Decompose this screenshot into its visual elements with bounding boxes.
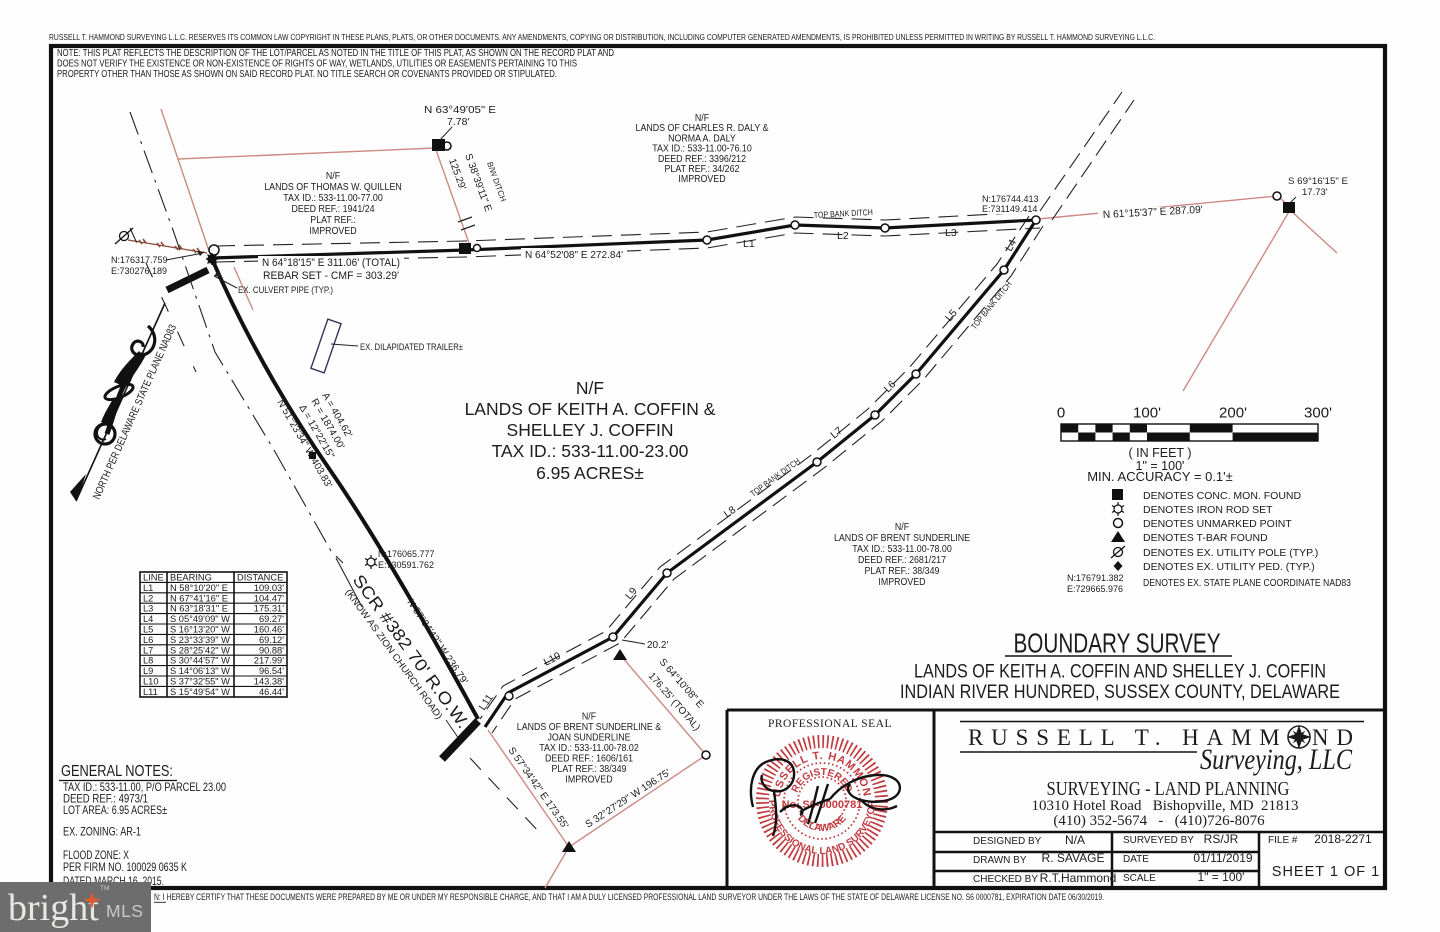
svg-text:L2: L2: [837, 230, 849, 242]
svg-text:100': 100': [1133, 405, 1161, 422]
svg-text:DISTANCE: DISTANCE: [237, 573, 283, 583]
svg-text:S 37°32'55" W: S 37°32'55" W: [170, 677, 230, 687]
svg-text:DENOTES CONC. MON. FOUND: DENOTES CONC. MON. FOUND: [1143, 490, 1302, 502]
svg-text:Surveying, LLC: Surveying, LLC: [1200, 743, 1353, 776]
svg-text:LINE: LINE: [143, 573, 164, 583]
svg-text:R. SAVAGE: R. SAVAGE: [1042, 851, 1105, 865]
svg-text:01/11/2019: 01/11/2019: [1193, 851, 1252, 865]
svg-text:7.78': 7.78': [447, 116, 469, 128]
svg-text:90.88': 90.88': [259, 645, 284, 655]
svg-text:46.44': 46.44': [259, 687, 284, 697]
svg-text:L3: L3: [945, 227, 957, 239]
svg-text:DRAWN BY: DRAWN BY: [973, 855, 1027, 866]
svg-text:E:730276.189: E:730276.189: [111, 266, 167, 276]
svg-text:IMPROVED: IMPROVED: [678, 174, 725, 186]
svg-text:DENOTES UNMARKED POINT: DENOTES UNMARKED POINT: [1143, 518, 1292, 530]
svg-text:R.T.Hammond: R.T.Hammond: [1040, 871, 1117, 885]
svg-text:CHECKED BY: CHECKED BY: [973, 874, 1038, 885]
svg-text:L9: L9: [143, 666, 153, 676]
svg-text:143.38': 143.38': [254, 677, 284, 687]
svg-text:PROPERTY OTHER THAN THOSE AS S: PROPERTY OTHER THAN THOSE AS SHOWN ON SA…: [57, 68, 557, 80]
svg-text:N:176744.413: N:176744.413: [982, 194, 1039, 204]
svg-text:(410) 352-5674 - (410)726-: (410) 352-5674 - (410)726-8076: [1053, 813, 1265, 829]
svg-text:N: I HEREBY CERTIFY THAT THESE: N: I HEREBY CERTIFY THAT THESE DOCUMENTS…: [154, 892, 1104, 903]
svg-text:EX. DILAPIDATED TRAILER±: EX. DILAPIDATED TRAILER±: [360, 342, 463, 353]
svg-text:FILE #: FILE #: [1268, 835, 1298, 846]
svg-text:EX. CULVERT PIPE (TYP.): EX. CULVERT PIPE (TYP.): [238, 285, 333, 296]
svg-text:PROFESSIONAL SEAL: PROFESSIONAL SEAL: [768, 718, 892, 730]
svg-text:E:730591.762: E:730591.762: [378, 560, 434, 570]
svg-text:S 15°49'54" W: S 15°49'54" W: [170, 687, 230, 697]
svg-text:S 69°16'15" E: S 69°16'15" E: [1288, 176, 1348, 187]
svg-text:L1: L1: [743, 238, 755, 250]
svg-text:LANDS OF KEITH A. COFFIN &: LANDS OF KEITH A. COFFIN &: [465, 399, 716, 419]
svg-text:TAX ID.: 533-11.00-23.00: TAX ID.: 533-11.00-23.00: [492, 441, 689, 461]
svg-text:104.47': 104.47': [254, 593, 284, 603]
svg-text:S 30°44'57" W: S 30°44'57" W: [170, 656, 230, 666]
svg-text:EX. ZONING: AR-1: EX. ZONING: AR-1: [63, 825, 141, 839]
svg-text:N 67°41'16" E: N 67°41'16" E: [170, 593, 228, 603]
svg-text:DENOTES EX. STATE PLANE COORDI: DENOTES EX. STATE PLANE COORDINATE NAD83: [1143, 577, 1351, 589]
svg-text:69.12': 69.12': [259, 635, 284, 645]
svg-text:175.31': 175.31': [254, 604, 284, 614]
svg-text:69.27': 69.27': [259, 614, 284, 624]
svg-text:( IN FEET ): ( IN FEET ): [1129, 446, 1192, 460]
svg-text:L10: L10: [143, 677, 159, 687]
svg-text:bright: bright: [8, 887, 99, 929]
svg-text:200': 200': [1219, 405, 1247, 422]
svg-text:E:729665.976: E:729665.976: [1067, 584, 1123, 594]
svg-text:TM: TM: [100, 885, 109, 892]
svg-text:BEARING: BEARING: [170, 573, 212, 583]
svg-text:IMPROVED: IMPROVED: [878, 576, 925, 588]
svg-text:0: 0: [1057, 405, 1065, 422]
svg-text:SURVEYED BY: SURVEYED BY: [1123, 835, 1194, 846]
svg-text:BOUNDARY SURVEY: BOUNDARY SURVEY: [1014, 628, 1221, 659]
svg-text:1" = 100': 1" = 100': [1198, 870, 1245, 884]
svg-text:LANDS OF KEITH A. COFFIN AND S: LANDS OF KEITH A. COFFIN AND SHELLEY J. …: [914, 662, 1326, 683]
svg-text:PER FIRM NO. 100029 0635 K: PER FIRM NO. 100029 0635 K: [63, 860, 187, 874]
svg-text:S 28°25'42" W: S 28°25'42" W: [170, 645, 230, 655]
svg-text:10310 Hotel Road Bishopville: 10310 Hotel Road Bishopville, MD 21813: [1031, 798, 1298, 814]
svg-text:N 58°10'20" E: N 58°10'20" E: [170, 583, 228, 593]
svg-text:INDIAN RIVER HUNDRED, SUSSEX C: INDIAN RIVER HUNDRED, SUSSEX COUNTY, DEL…: [900, 682, 1340, 703]
svg-text:DENOTES IRON ROD SET: DENOTES IRON ROD SET: [1143, 504, 1273, 516]
svg-text:DATE: DATE: [1123, 854, 1149, 865]
svg-text:GENERAL NOTES:: GENERAL NOTES:: [61, 763, 173, 780]
svg-text:SURVEYING - LAND PLANNING: SURVEYING - LAND PLANNING: [1047, 778, 1290, 800]
svg-text:L6: L6: [143, 635, 153, 645]
svg-text:REBAR SET - CMF = 303.29': REBAR SET - CMF = 303.29': [263, 270, 399, 282]
svg-text:RS/JR: RS/JR: [1204, 832, 1239, 846]
svg-text:L2: L2: [143, 593, 153, 603]
svg-text:IMPROVED: IMPROVED: [309, 225, 356, 237]
svg-text:N 64°52'08" E 272.84': N 64°52'08" E 272.84': [525, 249, 623, 261]
svg-text:L4: L4: [143, 614, 153, 624]
svg-text:SHEET 1 OF 1: SHEET 1 OF 1: [1272, 864, 1380, 880]
svg-text:17.73': 17.73': [1302, 187, 1328, 198]
svg-text:L7: L7: [143, 645, 153, 655]
svg-text:RUSSELL T. HAMMOND SURVEYING L: RUSSELL T. HAMMOND SURVEYING L.L.C. RESE…: [49, 33, 1155, 42]
svg-text:L8: L8: [143, 656, 153, 666]
svg-text:S 23°33'39" W: S 23°33'39" W: [170, 635, 230, 645]
svg-text:N 63°18'31" E: N 63°18'31" E: [170, 604, 228, 614]
svg-text:N/A: N/A: [1065, 833, 1085, 847]
svg-text:DENOTES EX. UTILITY PED. (TYP.: DENOTES EX. UTILITY PED. (TYP.): [1143, 561, 1315, 573]
svg-text:L1: L1: [143, 583, 153, 593]
svg-text:S 14°06'13" W: S 14°06'13" W: [170, 666, 230, 676]
svg-text:LOT AREA: 6.95 ACRES±: LOT AREA: 6.95 ACRES±: [63, 803, 167, 817]
svg-text:SCALE: SCALE: [1123, 873, 1156, 884]
svg-text:L3: L3: [143, 604, 153, 614]
svg-text:L11: L11: [143, 687, 158, 697]
svg-text:DENOTES T-BAR FOUND: DENOTES T-BAR FOUND: [1143, 532, 1268, 544]
svg-text:20.2': 20.2': [647, 640, 668, 651]
svg-text:DENOTES EX. UTILITY POLE (TYP.: DENOTES EX. UTILITY POLE (TYP.): [1143, 547, 1318, 559]
svg-text:6.95 ACRES±: 6.95 ACRES±: [536, 463, 644, 483]
svg-text:SHELLEY J. COFFIN: SHELLEY J. COFFIN: [507, 420, 674, 440]
svg-text:N:176065.777: N:176065.777: [378, 549, 435, 559]
svg-text:109.03': 109.03': [254, 583, 284, 593]
svg-text:DESIGNED BY: DESIGNED BY: [973, 836, 1042, 847]
svg-text:N 64°18'15" E 311.06' (TOTAL): N 64°18'15" E 311.06' (TOTAL): [262, 257, 400, 269]
svg-text:S 16°13'20" W: S 16°13'20" W: [170, 625, 230, 635]
svg-text:N:176317.759: N:176317.759: [111, 255, 168, 265]
svg-text:217.99': 217.99': [254, 656, 284, 666]
svg-text:N 63°49'05" E: N 63°49'05" E: [424, 104, 496, 116]
svg-text:MLS: MLS: [106, 901, 143, 921]
svg-text:300': 300': [1304, 405, 1332, 422]
svg-text:160.46': 160.46': [254, 625, 284, 635]
svg-text:S 05°49'09" W: S 05°49'09" W: [170, 614, 230, 624]
svg-text:N:176791.382: N:176791.382: [1067, 573, 1124, 583]
svg-text:L5: L5: [143, 625, 153, 635]
svg-text:96.54': 96.54': [259, 666, 284, 676]
svg-text:2018-2271: 2018-2271: [1314, 832, 1372, 846]
svg-text:N/F: N/F: [576, 378, 604, 398]
svg-text:MIN. ACCURACY = 0.1'±: MIN. ACCURACY = 0.1'±: [1087, 469, 1233, 484]
svg-text:E:731149.414: E:731149.414: [982, 204, 1037, 214]
svg-text:IMPROVED: IMPROVED: [565, 774, 612, 786]
